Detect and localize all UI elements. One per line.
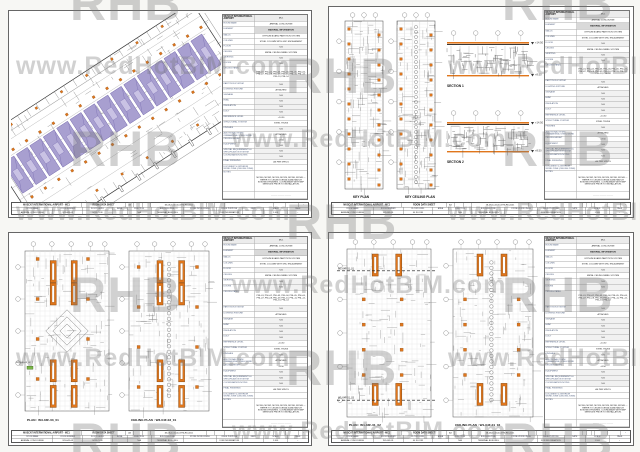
- key-plans-drawing: +14.50+8.50SECTION 1+14.50+8.50SECTION 2…: [331, 9, 543, 202]
- rds-row: NOTESMC300, MC302, MC310, MC320, MC330, …: [223, 171, 307, 193]
- title-block-cell: [464, 431, 472, 435]
- title-block-cell: [433, 211, 448, 214]
- title-block-cell: [607, 203, 621, 207]
- title-block-cell: A3: [447, 431, 455, 435]
- title-block-cell: W3-04F-03: [53, 211, 83, 214]
- title-block-cell: A3: [126, 431, 134, 435]
- rds-row: ——— ——— ———: [545, 192, 629, 199]
- title-block-cell: [505, 439, 538, 442]
- title-block-cell: [143, 203, 151, 207]
- title-block-cell: ROOM DATA SHEET: [402, 431, 447, 435]
- title-block-cell: [134, 203, 143, 207]
- title-block-cell: •: [621, 431, 630, 435]
- iso-3d-view-drawing: [11, 13, 221, 202]
- match-line-label: W1-04F-01_03: [338, 397, 355, 400]
- title-block-cell: [536, 203, 545, 207]
- rds-row: ——— ——— ———: [223, 192, 307, 199]
- key-plan-caption: KEY PLAN: [353, 195, 370, 199]
- title-block-cell: MUSCAT INTERNATIONAL AIRPORT - MC1: [332, 203, 402, 207]
- ceiling-plan-caption: CEILING PLAN : W3-04F-03_01: [131, 418, 176, 422]
- title-block-cell: [112, 211, 127, 214]
- title-block: MUSCAT INTERNATIONAL AIRPORT - MC1ROOM D…: [331, 430, 631, 443]
- title-block-cell: [112, 439, 127, 442]
- title-block-cell: FOR INFORMATION: [538, 439, 565, 442]
- title-block-cell: 1:100: [586, 211, 610, 214]
- title-block-cell: [464, 203, 472, 207]
- key-ceiling-plan-caption: KEY CEILING PLAN: [405, 195, 436, 199]
- title-block-cell: •: [609, 211, 630, 214]
- title-block-cell: [224, 431, 273, 435]
- rds-row: NOTESMC300, MC302, MC310, MC320, MC330, …: [223, 398, 307, 420]
- title-block-cell: FOR INFORMATION: [216, 439, 243, 442]
- title-block-cell: FOR INFORMATION: [216, 211, 243, 214]
- sheet-key-plans: +14.50+8.50SECTION 1+14.50+8.50SECTION 2…: [328, 6, 634, 218]
- rds-row: CEILING PANELPNL-01, PNL-02, PNL-03, PNL…: [545, 290, 629, 306]
- title-block-cell: •: [621, 203, 630, 207]
- title-block-cell: [595, 431, 607, 435]
- rds-row: CEILING PANELPNL-01, PNL-02, PNL-03, PNL…: [545, 64, 629, 80]
- title-block-cell: [143, 431, 151, 435]
- section-1-label: SECTION 1: [447, 84, 464, 88]
- rds-row: CEILING PANELPNL-01, PNL-02, PNL-03, PNL…: [223, 290, 307, 306]
- title-block-cell: [184, 211, 217, 214]
- title-block-cell: W1-04F-01: [374, 211, 404, 214]
- title-block-cell: N/A: [448, 439, 472, 442]
- title-block-cell: [224, 203, 273, 207]
- title-block-cell: [455, 431, 464, 435]
- title-block-cell: [433, 439, 448, 442]
- title-block-cell: [529, 203, 537, 207]
- title-block-cell: 1:100: [586, 439, 610, 442]
- title-block-cell: 1:100: [264, 211, 288, 214]
- title-block-cell: [595, 203, 607, 207]
- title-block-cell: [207, 431, 215, 435]
- title-block-cell: ROOM DATA SHEET: [402, 203, 447, 207]
- title-block-cell: TERMINAL BUILDING: [472, 211, 505, 214]
- title-block-cell: ARRIVAL CONCOURSE: [332, 439, 374, 442]
- rds-row: NOTESMC300, MC302, MC310, MC320, MC330, …: [545, 170, 629, 192]
- title-block-cell: MUSCAT INTERNATIONAL AIRPORT - MC1: [332, 431, 402, 435]
- title-block-cell: •: [288, 211, 308, 214]
- title-block-cell: 1B-0B-D-43-00-GYM-RD-0001: [151, 431, 207, 435]
- title-block-cell: ARRIVAL CONCOURSE: [332, 211, 374, 214]
- svg-text:+14.50: +14.50: [535, 121, 543, 125]
- title-block-cell: TERMINAL BUILDING: [151, 439, 184, 442]
- rds-row: ——— ——— ———: [545, 420, 629, 427]
- title-block-cell: 1B-0B-D-43-00-GYM-RD-0001: [151, 203, 207, 207]
- title-block-cell: [505, 211, 538, 214]
- title-block-cell: [546, 203, 595, 207]
- title-block-cell: [565, 211, 586, 214]
- title-block-cell: [536, 431, 545, 435]
- title-block-cell: [607, 431, 621, 435]
- title-block-cell: ROOM DATA SHEET: [81, 203, 126, 207]
- title-block-cell: [286, 203, 300, 207]
- svg-text:+8.50: +8.50: [535, 73, 542, 77]
- title-block-cell: ARRIVAL CONCOURSE: [12, 439, 53, 442]
- room-data-table: MUSCAT INTERNATIONAL AIRPORTMC1ROOM NAME…: [544, 10, 630, 200]
- title-block-cell: •: [299, 431, 308, 435]
- match-line-label: W1-04F-01_01: [338, 267, 355, 270]
- svg-text:+8.50: +8.50: [535, 149, 542, 153]
- title-block-cell: [529, 431, 537, 435]
- title-block-cell: [207, 203, 215, 207]
- view-reference-label: W3-04F-03_02: [16, 362, 31, 364]
- title-block-cell: [134, 431, 143, 435]
- section-2-label: SECTION 2: [447, 160, 464, 164]
- title-block-cell: [565, 439, 586, 442]
- title-block: MUSCAT INTERNATIONAL AIRPORT - MC1ROOM D…: [11, 202, 309, 215]
- drawing-sheet-collage: MUSCAT INTERNATIONAL AIRPORTMC1ROOM NAME…: [0, 0, 640, 452]
- title-block-cell: A3: [126, 203, 134, 207]
- title-block-cell: [184, 439, 217, 442]
- title-block-cell: W1-04F-01: [374, 439, 404, 442]
- title-block-cell: [273, 431, 285, 435]
- title-block-cell: 04 FLOOR: [83, 439, 113, 442]
- title-block-cell: [273, 203, 285, 207]
- title-block-cell: •: [288, 439, 308, 442]
- title-block-cell: 1B-0B-D-43-00-GYM-RD-0001: [472, 431, 529, 435]
- rds-row: CEILING PANELPNL-01, PNL-02, PNL-03, PNL…: [223, 67, 307, 83]
- title-block: MUSCAT INTERNATIONAL AIRPORT - MC1ROOM D…: [331, 202, 631, 215]
- title-block-cell: •: [299, 203, 308, 207]
- svg-text:+14.50: +14.50: [535, 41, 543, 45]
- title-block: MUSCAT INTERNATIONAL AIRPORT - MC1ROOM D…: [11, 430, 309, 443]
- sheet-3d-room-view: MUSCAT INTERNATIONAL AIRPORTMC1ROOM NAME…: [8, 10, 312, 218]
- title-block-cell: ARRIVAL CONCOURSE: [12, 211, 53, 214]
- sheet-plan-w3: W3-04F-03_02PLAN : W3-04F-03_01CEILING P…: [8, 232, 312, 446]
- title-block-cell: [243, 211, 264, 214]
- title-block-cell: TERMINAL BUILDING: [472, 439, 505, 442]
- title-block-cell: MUSCAT INTERNATIONAL AIRPORT - MC1: [12, 431, 81, 435]
- title-block-cell: FOR INFORMATION: [538, 211, 565, 214]
- room-data-table: MUSCAT INTERNATIONAL AIRPORTMC1ROOM NAME…: [544, 236, 630, 428]
- title-block-cell: MUSCAT INTERNATIONAL AIRPORT - MC1: [12, 203, 81, 207]
- title-block-cell: 1:100: [264, 439, 288, 442]
- plan-w3-drawing: W3-04F-03_02PLAN : W3-04F-03_01CEILING P…: [11, 235, 221, 430]
- title-block-cell: TERMINAL BUILDING: [151, 211, 184, 214]
- title-block-cell: N/A: [127, 211, 151, 214]
- title-block-cell: N/A: [448, 211, 472, 214]
- rds-row: NOTESMC300, MC302, MC310, MC320, MC330, …: [545, 398, 629, 420]
- title-block-cell: 1B-0B-D-43-00-GYM-RD-0001: [472, 203, 529, 207]
- sheet-plan-w1: W1-04F-01_01W1-04F-01_03PLAN : W1-04F-01…: [328, 232, 634, 446]
- title-block-cell: [455, 203, 464, 207]
- title-block-cell: [243, 439, 264, 442]
- title-block-cell: [286, 431, 300, 435]
- title-block-cell: [215, 431, 224, 435]
- title-block-cell: 04 FLOOR: [403, 211, 433, 214]
- title-block-cell: •: [609, 439, 630, 442]
- room-data-table: MUSCAT INTERNATIONAL AIRPORTMC1ROOM NAME…: [222, 14, 308, 200]
- title-block-cell: [215, 203, 224, 207]
- plan-caption: PLAN : W1-04F-01_02: [349, 423, 381, 427]
- plan-w1-drawing: W1-04F-01_01W1-04F-01_03PLAN : W1-04F-01…: [331, 235, 543, 430]
- title-block-cell: 04 FLOOR: [403, 439, 433, 442]
- ceiling-plan-caption: CEILING PLAN : W1-04F-01_02: [455, 423, 500, 427]
- title-block-cell: ROOM DATA SHEET: [81, 431, 126, 435]
- title-block-cell: N/A: [127, 439, 151, 442]
- plan-caption: PLAN : W3-04F-03_01: [27, 418, 59, 422]
- title-block-cell: A3: [447, 203, 455, 207]
- room-data-table: MUSCAT INTERNATIONAL AIRPORTMC1ROOM NAME…: [222, 236, 308, 428]
- title-block-cell: W3-04F-03: [53, 439, 83, 442]
- title-block-cell: [546, 431, 595, 435]
- title-block-cell: 04 FLOOR: [83, 211, 113, 214]
- rds-row: ——— ——— ———: [223, 420, 307, 427]
